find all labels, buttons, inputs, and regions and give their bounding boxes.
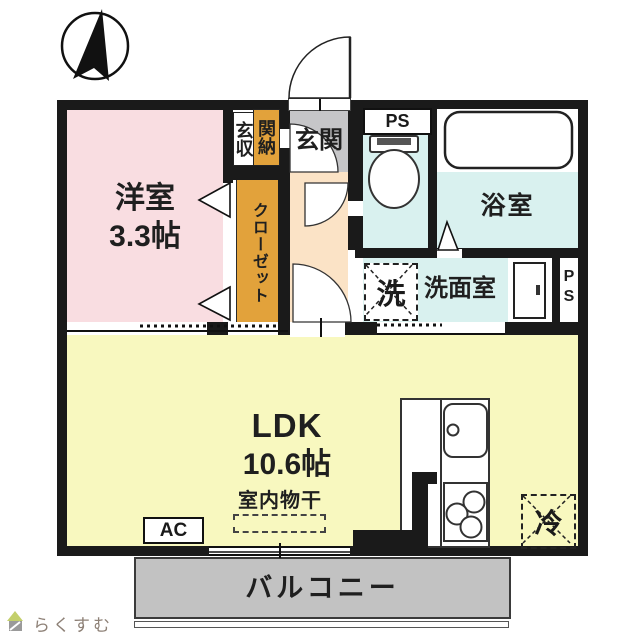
kitchen-partition-wall-cap xyxy=(412,472,437,484)
room-western xyxy=(67,108,223,322)
ldk-size: 10.6帖 xyxy=(180,449,394,481)
western-room-name: 洋室 xyxy=(67,183,223,215)
north-arrow-icon xyxy=(73,9,109,81)
washroom-label: 洗面室 xyxy=(402,276,518,301)
opening-wash-ldk xyxy=(377,322,505,335)
pipe-space-top-box: PS xyxy=(363,108,432,135)
entrance-threshold xyxy=(288,98,351,111)
bath-label: 浴室 xyxy=(437,193,578,219)
western-room-size: 3.3帖 xyxy=(67,221,223,253)
pipe-space-right-label: P S xyxy=(560,267,578,307)
ac-label: AC xyxy=(160,520,187,542)
ps-right-s: S xyxy=(560,287,578,307)
laundry-pole-box xyxy=(233,514,326,533)
wall-ps-right xyxy=(552,258,560,322)
compass-icon xyxy=(62,9,128,81)
closet-label: クローゼット xyxy=(237,186,278,320)
wall-wash-top xyxy=(355,248,578,258)
wall-closet-bottom-stub xyxy=(207,322,228,335)
bathtub-zone xyxy=(437,108,578,172)
closet-door-strip xyxy=(223,183,237,322)
wall-bottom-left xyxy=(57,546,209,556)
opening-toilet-door xyxy=(348,201,363,216)
opening-storage-genkan xyxy=(279,129,290,148)
rakusumu-logo: らくすむ xyxy=(8,610,208,636)
refrigerator-box: 冷 xyxy=(521,494,576,549)
ldk-laundry-note: 室内物干 xyxy=(180,491,380,512)
wall-wash-bottom-left-stub xyxy=(345,322,377,335)
wall-wash-bottom-right xyxy=(505,322,578,335)
opening-bath-door xyxy=(437,249,462,258)
balcony-label: バルコニー xyxy=(245,574,399,602)
kitchen-counter-divider xyxy=(440,398,442,548)
pipe-space-top-label: PS xyxy=(385,111,409,132)
kitchen-partition-wall-horizontal xyxy=(353,530,428,548)
ps-right-p: P xyxy=(560,267,578,287)
wall-hall-right xyxy=(348,108,363,250)
opening-hall-ldk xyxy=(290,322,345,337)
entrance-door-arc xyxy=(289,37,350,98)
rakusumu-logo-text: らくすむ xyxy=(33,611,113,636)
compass-circle xyxy=(62,13,128,79)
refrigerator-label: 冷 xyxy=(534,502,562,542)
genkan-storage-right-label: 関納 xyxy=(253,111,278,163)
balcony-window xyxy=(209,546,350,556)
genkan-label: 玄関 xyxy=(290,128,348,153)
room-toilet xyxy=(363,131,428,248)
ldk-name: LDK xyxy=(180,409,394,444)
ac-box: AC xyxy=(143,517,204,544)
sliding-partition-strip xyxy=(67,322,288,335)
wall-right xyxy=(578,100,588,556)
floor-plan: バルコニー PS 洗 冷 AC xyxy=(0,0,640,640)
genkan-storage-left-label: 玄収 xyxy=(233,114,253,164)
wall-left xyxy=(57,100,67,556)
